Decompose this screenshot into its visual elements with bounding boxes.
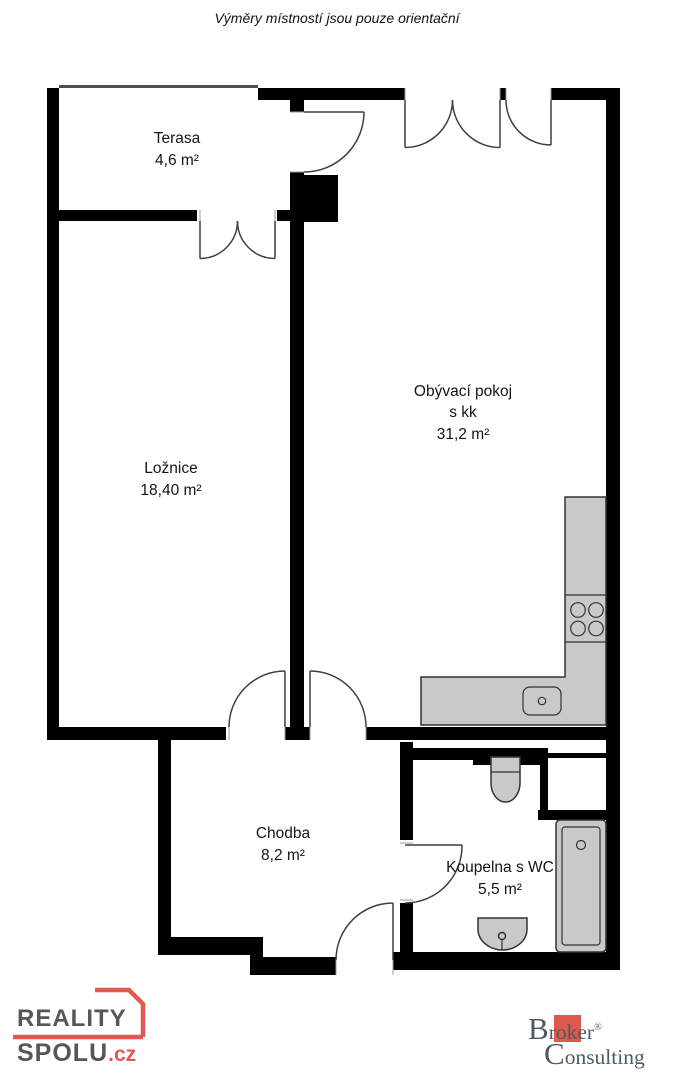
wall-segment <box>47 727 226 740</box>
room-area-terasa: 4,6 m² <box>155 152 199 169</box>
wall-segment <box>290 172 304 740</box>
door-swing-arc <box>304 112 364 172</box>
door-balcony-single <box>506 100 551 145</box>
terrace-railing <box>59 85 258 88</box>
door-swing-arc <box>453 100 501 148</box>
room-area-koupelna: 5,5 m² <box>478 881 522 898</box>
room-area-loznice: 18,40 m² <box>140 482 201 499</box>
door-swing-arc <box>310 671 366 727</box>
broker-consulting-logo: Broker® Consulting <box>524 1010 674 1074</box>
washbasin-icon <box>478 918 527 950</box>
door-swing-arc <box>336 903 393 960</box>
wall-segment <box>393 952 620 970</box>
wall-segment <box>400 742 413 840</box>
room-label-loznice: Ložnice <box>144 460 197 477</box>
spolu-text: SPOLU <box>17 1039 108 1067</box>
wall-segment <box>290 100 304 112</box>
wall-segment <box>500 88 506 100</box>
door-living <box>310 671 366 727</box>
bathtub-outer <box>556 820 606 952</box>
wall-segment <box>366 727 620 740</box>
shaft-niche-bottom <box>538 810 606 820</box>
shaft-niche-top <box>548 753 606 758</box>
room-area-obyvaci-pokoj: 31,2 m² <box>437 426 490 443</box>
kitchen-counter <box>421 497 606 725</box>
door-swing-arc <box>229 671 285 727</box>
wall-segment <box>285 727 310 740</box>
wall-segment <box>47 88 59 740</box>
door-swing-arc <box>405 100 453 148</box>
wall-segment <box>59 210 197 221</box>
reality-wordmark: REALITY <box>17 1007 127 1031</box>
floor-plan-page: Výměry místností jsou pouze orientační <box>0 0 674 1080</box>
consulting-wordmark: Consulting <box>544 1036 645 1075</box>
room-label-obyvaci-pokoj: Obývací pokoj <box>414 383 512 400</box>
door-swing-arc <box>200 221 238 259</box>
disclaimer-text: Výměry místností jsou pouze orientační <box>214 10 461 26</box>
door-swing-arc <box>238 221 276 259</box>
toilet-icon <box>491 757 520 802</box>
kitchen-counter <box>421 497 606 725</box>
washbasin-faucet <box>499 933 506 940</box>
consulting-initial: C <box>544 1036 565 1071</box>
wall-segment <box>400 903 413 970</box>
room-label-terasa: Terasa <box>154 130 201 147</box>
walls <box>47 88 620 975</box>
door-terrace-living <box>304 112 364 172</box>
registered-mark: ® <box>594 1022 602 1033</box>
room-label-chodba: Chodba <box>256 825 311 842</box>
shaft-niche-left <box>540 753 548 818</box>
door-terrace-french <box>200 221 275 259</box>
wall-segment <box>158 740 171 940</box>
spolu-wordmark: SPOLU.cz <box>17 1041 136 1066</box>
room-sublabel-obyvaci-pokoj: s kk <box>449 404 477 421</box>
door-entrance <box>336 903 393 960</box>
wall-segment <box>250 957 336 975</box>
duct-block <box>304 175 338 222</box>
room-area-chodba: 8,2 m² <box>261 847 305 864</box>
door-jambs <box>200 88 551 975</box>
toilet-bowl <box>491 757 520 802</box>
cz-tld-text: .cz <box>108 1043 136 1066</box>
door-bedroom <box>229 671 285 727</box>
wall-segment <box>158 937 263 955</box>
room-label-koupelna: Koupelna s WC <box>446 859 554 876</box>
wall-segment <box>606 88 620 970</box>
door-swing-arc <box>506 100 551 145</box>
door-balcony-french <box>405 100 500 148</box>
bathtub-icon <box>556 820 606 952</box>
wall-segment <box>258 88 405 100</box>
floor-plan: Výměry místností jsou pouze orientační <box>0 0 674 1080</box>
consulting-rest: onsulting <box>565 1045 645 1069</box>
